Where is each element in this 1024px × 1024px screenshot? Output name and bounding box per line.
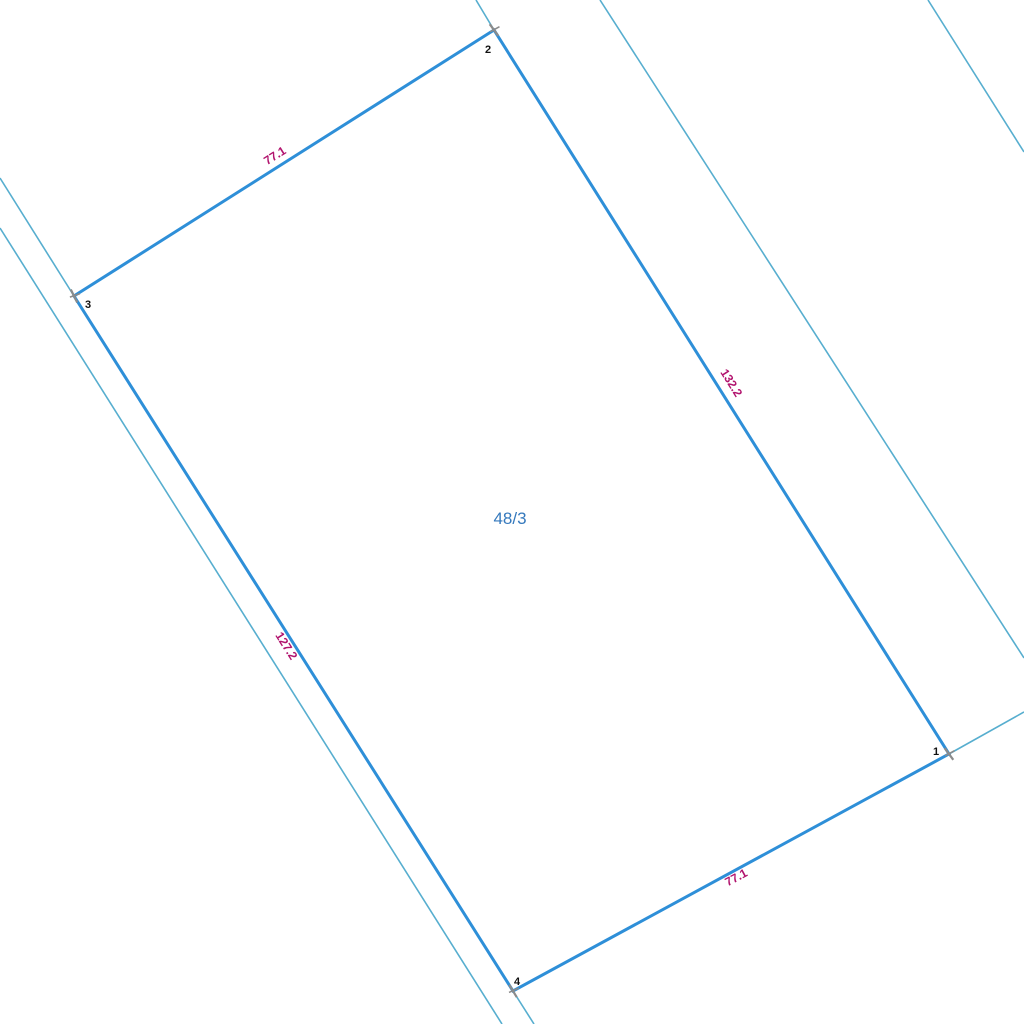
parcel-id-label[interactable]: 48/3 <box>493 509 526 528</box>
edge-length-label: 77.1 <box>723 866 750 890</box>
adjacent-boundary-line <box>0 178 74 296</box>
vertex-number-label: 2 <box>485 44 491 56</box>
adjacent-boundary-line <box>0 228 502 1024</box>
boundary-point-marker <box>67 289 82 303</box>
adjacent-boundary-line <box>949 712 1024 754</box>
cadastral-map-view[interactable]: 234177.1132.2127.277.148/3 <box>0 0 1024 1024</box>
vertex-number-label: 3 <box>85 299 91 311</box>
vertex-number-label: 4 <box>514 976 521 988</box>
vertex-number-label: 1 <box>933 746 939 758</box>
adjacent-boundary-line <box>928 0 1024 152</box>
map-canvas[interactable]: 234177.1132.2127.277.148/3 <box>0 0 1024 1024</box>
adjacent-boundary-line <box>600 0 1024 658</box>
